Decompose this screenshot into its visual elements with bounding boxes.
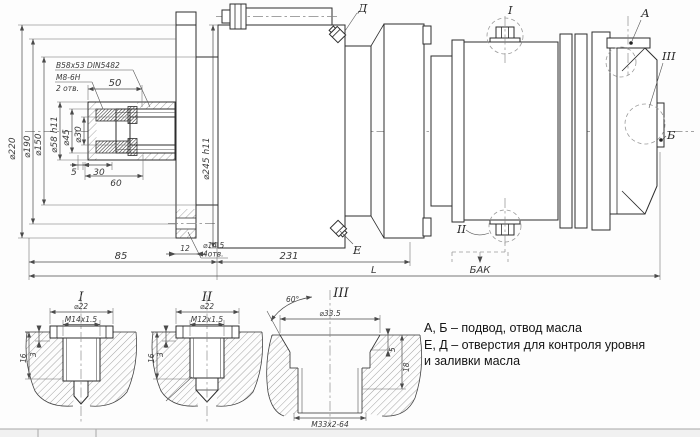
stud-top (96, 109, 130, 121)
detail-iii: III 60° ⌀33.5 5 18 М33х2-64 (267, 286, 422, 429)
dim-60-label: 60 (110, 179, 122, 189)
detail-iii-thread-label: М33х2-64 (311, 420, 349, 429)
spline-note-label: B58x53 DIN5482 (56, 61, 120, 70)
dim-d45-label: ⌀45 (62, 129, 72, 146)
tie-rod-nut (230, 4, 246, 29)
dim-231-label: 231 (279, 251, 298, 262)
hole-qty-label: 4отв. (203, 250, 224, 259)
legend-line-2: Е, Д – отверстия для контроля уровня (424, 338, 645, 352)
detail-ii: II ⌀22 М12х1.5 16 3 (147, 290, 263, 424)
callout-ii-label: II (456, 222, 467, 236)
title-block-edge (0, 429, 700, 437)
detail-iii-title: III (332, 286, 349, 301)
dim-d150-label: ⌀150 (34, 133, 44, 156)
m8-thread-label: М8-6Н (56, 73, 81, 82)
detail-ii-thread-label: М12х1.5 (191, 315, 224, 324)
detail-i-thread-label: М14х1.5 (65, 315, 98, 324)
callout-a-label: А (640, 6, 650, 20)
dim-30-label: 30 (93, 168, 105, 178)
dim-50-label: 50 (109, 78, 122, 89)
detail-iii-angle-label: 60° (286, 295, 300, 304)
detail-ii-d22-label: ⌀22 (200, 302, 214, 311)
detail-i-d22-label: ⌀22 (74, 302, 88, 311)
callout-b-label: Б (666, 128, 676, 142)
m8-qty-label: 2 отв. (56, 84, 79, 93)
dim-d190-label: ⌀190 (23, 135, 33, 158)
port-a-boss (607, 38, 650, 48)
dim-d245-label: ⌀245 h11 (202, 137, 212, 180)
detail-i: I ⌀22 М14х1.5 16 3 (19, 290, 137, 424)
dim-12-label: 12 (180, 244, 190, 253)
callout-d-label: Д (357, 1, 368, 15)
output-shaft-section (88, 102, 175, 160)
dim-d220-label: ⌀220 (8, 137, 18, 160)
drum-sections (345, 24, 464, 238)
gearbox-assembly-drawing: Д Е А Б III I II B58x53 DIN5482 М8-6Н 2 … (0, 0, 700, 437)
legend-line-3: и заливки масла (424, 354, 520, 368)
dim-d58-label: ⌀58 h11 (50, 116, 60, 153)
callout-i-label: I (507, 3, 513, 17)
detail-iii-d335-label: ⌀33.5 (319, 309, 340, 318)
dim-l-label: L (371, 265, 377, 276)
detail-i-16-label: 16 (19, 353, 28, 363)
legend-line-1: А, Б – подвод, отвод масла (424, 321, 582, 335)
mounting-flange (168, 12, 226, 238)
stud-bottom (96, 141, 130, 153)
tank-callout: БАК (452, 242, 508, 276)
end-cap-assembly (560, 16, 665, 230)
dim-5-label: 5 (71, 168, 77, 178)
legend-notes: А, Б – подвод, отвод масла Е, Д – отверс… (424, 321, 645, 368)
callout-iii-label: III (661, 49, 676, 63)
detail-iii-18-label: 18 (402, 362, 411, 372)
detail-i-3-label: 3 (29, 352, 38, 357)
detail-ii-16-label: 16 (147, 353, 156, 363)
dim-85-label: 85 (115, 251, 128, 262)
port-a-point (629, 41, 633, 45)
main-view: Д Е А Б III I II B58x53 DIN5482 М8-6Н 2 … (8, 1, 694, 280)
dim-d30-label: ⌀30 (74, 126, 84, 143)
detail-ii-3-label: 3 (156, 352, 165, 357)
engineering-drawing-page: Д Е А Б III I II B58x53 DIN5482 М8-6Н 2 … (0, 0, 700, 437)
detail-iii-5-label: 5 (388, 347, 397, 352)
bearing-housing-cylinder (464, 16, 558, 244)
callout-e-label: Е (352, 243, 362, 257)
main-housing-cylinder (216, 4, 349, 248)
tank-label: БАК (470, 265, 492, 276)
